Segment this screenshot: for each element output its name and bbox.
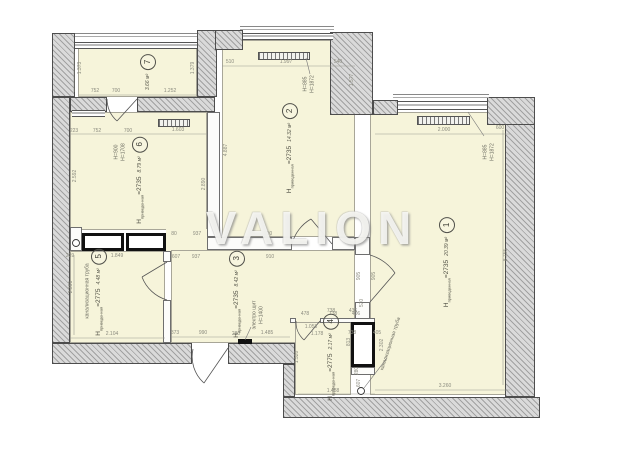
room-height-label: Нприведенная=2735 bbox=[286, 146, 294, 193]
room-height-label: Нприведенная=2735 bbox=[233, 291, 241, 338]
room-height-label: Нприведенная=2775 bbox=[95, 289, 103, 336]
room-height-label: Нприведенная=2735 bbox=[443, 260, 451, 307]
floor-plan: 7527001.2521.3731.3792237527001.6032.592… bbox=[0, 0, 630, 475]
dimension-label: 905 bbox=[371, 272, 377, 280]
dimension-label: 2.592 bbox=[72, 170, 78, 183]
dimension-label: 1.373 bbox=[77, 62, 83, 75]
room-number-badge: 6 bbox=[132, 136, 148, 152]
room-area-label: 3.66 м² bbox=[145, 74, 151, 90]
room-area-label: 2.17 м² bbox=[328, 333, 334, 349]
dimension-label: 1.379 bbox=[190, 62, 196, 75]
dimension-label: 1.603 bbox=[172, 127, 185, 133]
room-3-label: Нприведенная=27358.42 м²3 bbox=[229, 250, 245, 337]
room-5-label: Нприведенная=27754.48 м²5 bbox=[91, 248, 107, 335]
dimension-label: 1.520 bbox=[294, 351, 300, 364]
room-6-label: Нприведенная=27358.79 м²6 bbox=[132, 136, 148, 223]
dimension-label: 738 bbox=[348, 330, 356, 336]
room-1-label: Нприведенная=273520.39 м²1 bbox=[439, 217, 455, 307]
dimension-label: 1.485 bbox=[261, 330, 274, 336]
dimension-label: 510 bbox=[226, 59, 234, 65]
room-height-label: Нприведенная=2775 bbox=[327, 354, 335, 401]
dimension-label: 406 bbox=[352, 311, 360, 317]
room-area-label: 4.48 м² bbox=[96, 268, 102, 284]
dimension-label: 2.890 bbox=[201, 178, 207, 191]
annotation-text: электро щит Н=1400 bbox=[251, 301, 265, 330]
dimension-label: 990 bbox=[199, 330, 207, 336]
room-height-label: Нприведенная=2735 bbox=[136, 177, 144, 224]
dimension-label: 3.260 bbox=[439, 383, 452, 389]
room-number-badge: 1 bbox=[439, 217, 455, 233]
room-area-label: 20.39 м² bbox=[444, 237, 450, 256]
dimension-label: 570 bbox=[359, 299, 365, 307]
dimension-label: 1.997 bbox=[280, 59, 293, 65]
dimension-label: 752 bbox=[91, 88, 99, 94]
dimension-label: 80 bbox=[171, 231, 177, 237]
dimension-label: 752 bbox=[93, 128, 101, 134]
dimension-label: 223 bbox=[70, 128, 78, 134]
dimension-label: 607 bbox=[172, 254, 180, 260]
dimension-label: 2.000 bbox=[438, 127, 451, 133]
dimension-label: 813 bbox=[346, 338, 352, 346]
dimension-label: 2.104 bbox=[106, 331, 119, 337]
room-number-badge: 7 bbox=[140, 54, 156, 70]
room-area-label: 8.42 м² bbox=[234, 270, 240, 286]
dimension-label: 8.755 bbox=[503, 249, 509, 262]
dimension-label: 4.887 bbox=[223, 144, 229, 157]
annotation-text: H=900 H=1708 bbox=[113, 143, 127, 161]
room-area-label: 8.79 м² bbox=[137, 156, 143, 172]
dimension-label: 700 bbox=[112, 88, 120, 94]
dimension-label: 937 bbox=[193, 231, 201, 237]
dimension-label: 540 bbox=[334, 59, 342, 65]
dimension-label: 600 bbox=[496, 125, 504, 131]
dimension-label: 373 bbox=[171, 330, 179, 336]
dimension-label: 1.058 bbox=[305, 324, 318, 330]
room-7-label: 3.66 м²7 bbox=[140, 54, 156, 90]
room-4-label: Нприведенная=27752.17 м²4 bbox=[323, 313, 339, 400]
dimension-label: 905 bbox=[356, 272, 362, 280]
room-number-badge: 5 bbox=[91, 248, 107, 264]
dimension-label: 280 bbox=[354, 367, 360, 375]
dimension-label: 1.252 bbox=[164, 88, 177, 94]
annotation-text: H=885 H=1872 bbox=[482, 143, 496, 161]
dimension-label: 2.391 bbox=[68, 281, 74, 294]
dimension-label: 607 bbox=[356, 379, 362, 387]
dimension-label: 937 bbox=[192, 254, 200, 260]
room-number-badge: 4 bbox=[323, 313, 339, 329]
annotation-text: H=885 H=1872 bbox=[302, 75, 316, 93]
dimension-label: 1.849 bbox=[111, 253, 124, 259]
dimension-label: 700 bbox=[124, 128, 132, 134]
room-area-label: 14.32 м² bbox=[287, 123, 293, 142]
dimension-label: 1.178 bbox=[311, 331, 324, 337]
room-number-badge: 2 bbox=[282, 103, 298, 119]
room-2-label: Нприведенная=273514.32 м²2 bbox=[282, 103, 298, 193]
dimension-label: 1.577 bbox=[349, 74, 355, 87]
watermark: VALION bbox=[206, 201, 418, 255]
dimension-label: 478 bbox=[301, 311, 309, 317]
dimension-label: 2.302 bbox=[379, 339, 385, 352]
dimension-label: 239 bbox=[66, 253, 74, 259]
dimension-label: 405 bbox=[373, 330, 381, 336]
